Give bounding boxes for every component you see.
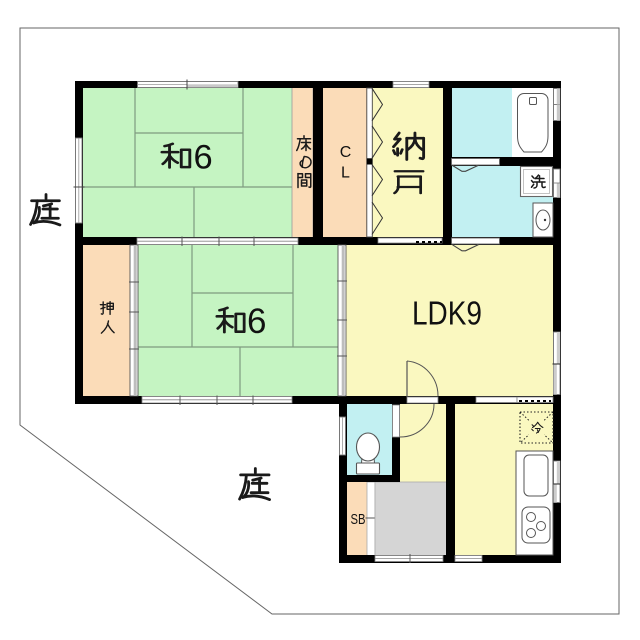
svg-text:LDK9: LDK9 [412, 295, 482, 332]
svg-text:L: L [341, 165, 350, 182]
svg-text:C: C [340, 144, 352, 161]
svg-text:SB: SB [351, 512, 366, 528]
svg-text:6: 6 [194, 139, 213, 177]
svg-text:6: 6 [247, 302, 266, 341]
